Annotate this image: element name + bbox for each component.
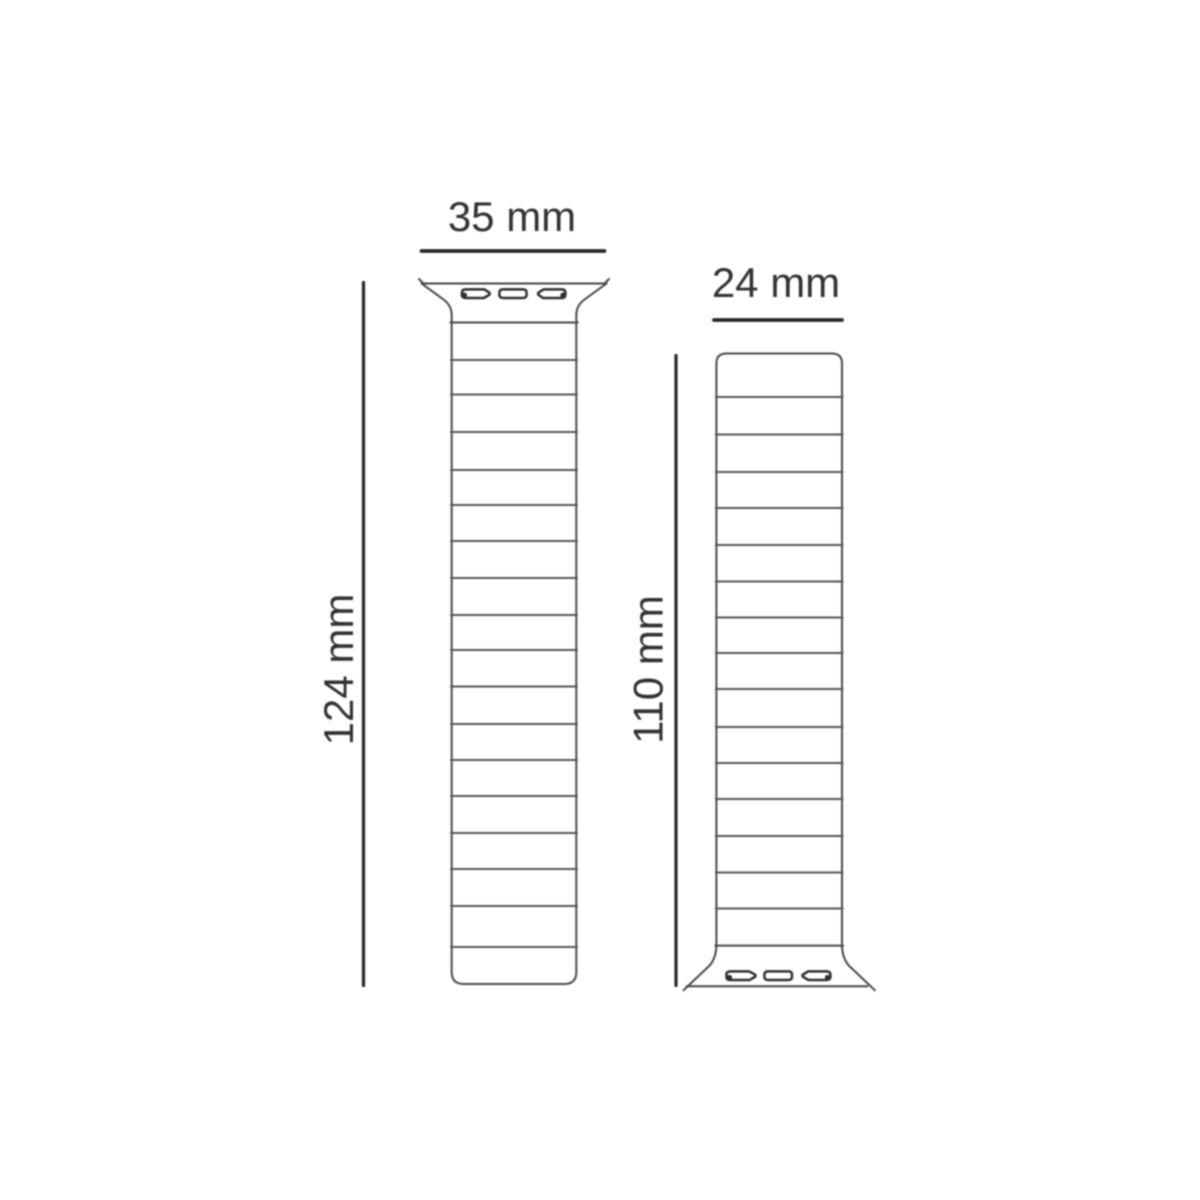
svg-text:124 mm: 124 mm [315,594,362,746]
svg-text:110 mm: 110 mm [625,595,672,744]
svg-text:24 mm: 24 mm [712,259,840,306]
svg-text:35 mm: 35 mm [448,193,576,240]
